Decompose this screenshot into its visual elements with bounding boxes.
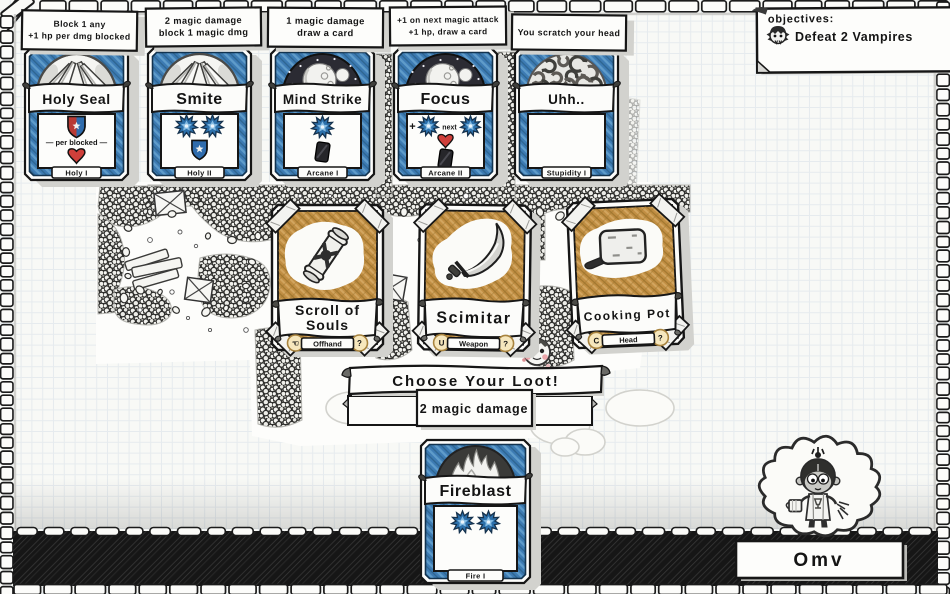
svg-text:+: + — [409, 121, 415, 133]
svg-text:Arcane I: Arcane I — [307, 169, 339, 178]
svg-text:Scroll of: Scroll of — [295, 302, 360, 318]
svg-text:Focus: Focus — [420, 91, 470, 108]
svg-text:Holy II: Holy II — [187, 169, 212, 178]
svg-text:?: ? — [503, 339, 508, 348]
svg-text:Souls: Souls — [306, 317, 349, 333]
svg-text:next: next — [442, 125, 457, 132]
svg-text:?: ? — [357, 339, 362, 348]
svg-text:Fire I: Fire I — [466, 572, 486, 581]
svg-text:Block 1 any: Block 1 any — [53, 19, 105, 30]
svg-text:Uhh..: Uhh.. — [548, 92, 585, 107]
svg-text:+1 hp per dmg blocked: +1 hp per dmg blocked — [28, 30, 130, 41]
svg-text:Fireblast: Fireblast — [439, 483, 511, 500]
svg-text:— per blocked —: — per blocked — — [46, 138, 108, 147]
svg-text:Mind Strike: Mind Strike — [283, 92, 362, 107]
svg-text:Stupidity I: Stupidity I — [547, 169, 587, 178]
svg-text:1 magic damage: 1 magic damage — [286, 15, 365, 27]
svg-text:block 1 magic dmg: block 1 magic dmg — [159, 27, 249, 38]
svg-text:draw a card: draw a card — [297, 27, 354, 38]
svg-text:Smite: Smite — [176, 91, 223, 108]
svg-text:Omv: Omv — [793, 550, 844, 571]
svg-text:C: C — [593, 336, 599, 345]
svg-text:You scratch your head: You scratch your head — [518, 27, 621, 38]
svg-text:Holy I: Holy I — [65, 169, 87, 178]
svg-text:Choose Your Loot!: Choose Your Loot! — [392, 373, 560, 390]
svg-text:Weapon: Weapon — [459, 339, 489, 348]
svg-text:U: U — [439, 339, 445, 348]
svg-text:Offhand: Offhand — [313, 340, 342, 349]
svg-text:Arcane II: Arcane II — [428, 169, 462, 178]
svg-text:2 magic damage: 2 magic damage — [420, 402, 528, 416]
svg-text:Scimitar: Scimitar — [436, 309, 511, 327]
svg-text:objectives:: objectives: — [768, 13, 834, 25]
svg-text:Holy Seal: Holy Seal — [42, 91, 110, 107]
svg-text:+1 on next magic attack: +1 on next magic attack — [397, 15, 499, 25]
svg-text:2 magic damage: 2 magic damage — [165, 15, 242, 26]
svg-text:☜: ☜ — [292, 339, 299, 348]
svg-text:?: ? — [658, 333, 663, 342]
svg-text:+1 hp, draw a card: +1 hp, draw a card — [409, 27, 488, 37]
svg-text:Head: Head — [619, 335, 638, 345]
svg-text:Defeat 2 Vampires: Defeat 2 Vampires — [795, 30, 913, 44]
